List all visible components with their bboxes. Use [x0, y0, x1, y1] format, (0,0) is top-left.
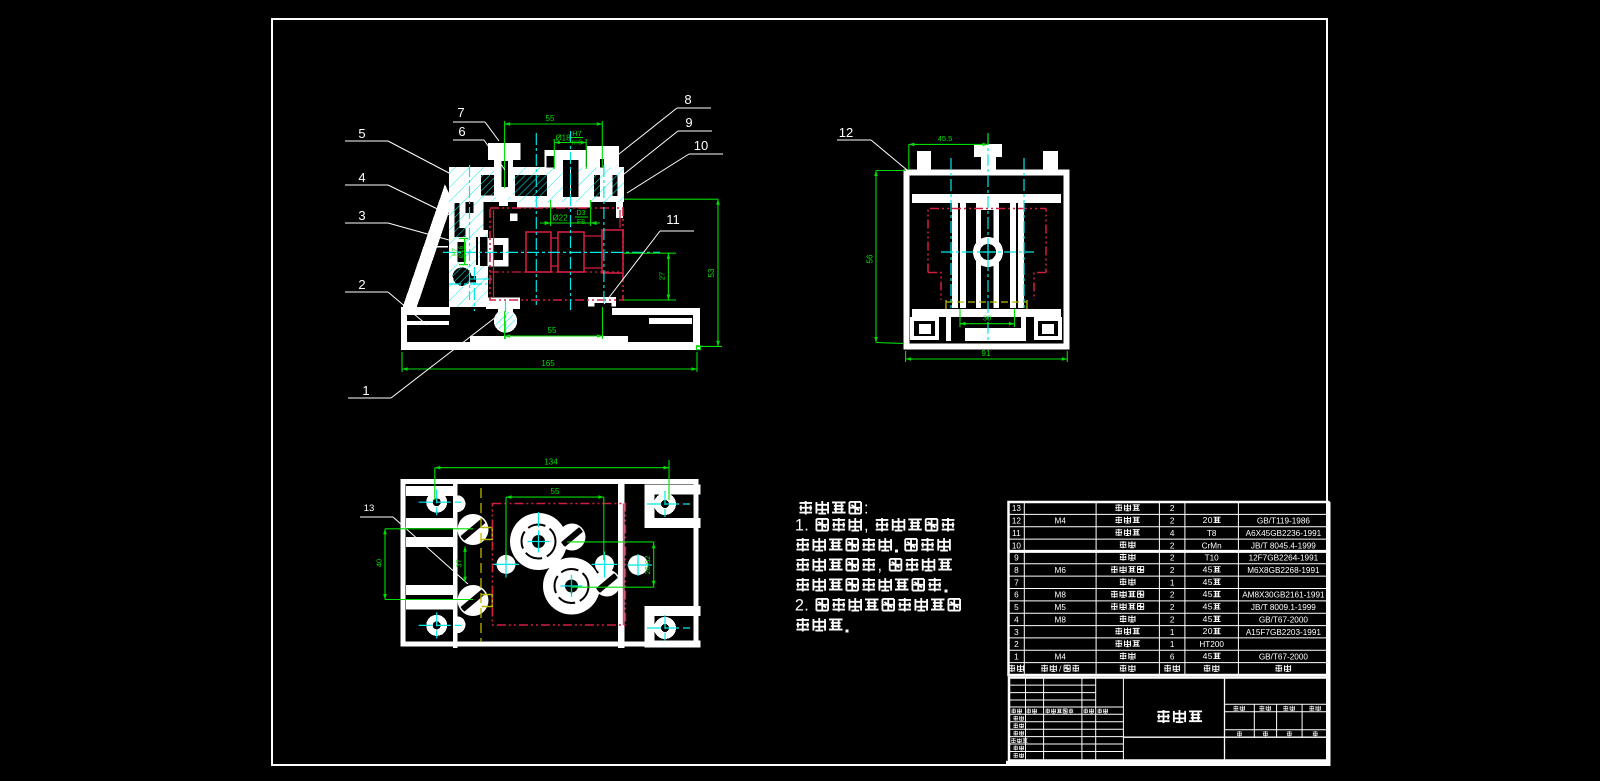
svg-text:91: 91	[982, 349, 991, 358]
svg-text:M4: M4	[1055, 517, 1067, 526]
svg-text:56: 56	[866, 254, 875, 263]
svg-text:m6: m6	[572, 138, 582, 147]
svg-text:,: ,	[864, 516, 869, 534]
svg-text:3: 3	[358, 208, 365, 223]
svg-text:12F7GB2264-1991: 12F7GB2264-1991	[1249, 554, 1319, 563]
svg-text:F8: F8	[577, 219, 585, 226]
svg-text:4: 4	[358, 170, 365, 185]
svg-text:T10: T10	[1205, 554, 1220, 563]
svg-text:26.02: 26.02	[643, 556, 652, 575]
svg-text:5: 5	[1208, 564, 1213, 574]
svg-text:12: 12	[839, 125, 853, 140]
svg-text:1: 1	[795, 516, 804, 534]
svg-text:6: 6	[1014, 591, 1019, 600]
svg-text:55: 55	[546, 114, 555, 123]
svg-text:5: 5	[1208, 577, 1213, 587]
svg-text:13: 13	[364, 503, 375, 514]
svg-text:45.5: 45.5	[938, 134, 953, 143]
svg-text:T8: T8	[1207, 529, 1217, 538]
svg-text:2: 2	[358, 277, 365, 292]
svg-text:M4: M4	[1055, 652, 1067, 661]
svg-text:2: 2	[1170, 554, 1175, 563]
svg-text:9: 9	[1014, 554, 1019, 563]
svg-text:1: 1	[1170, 628, 1175, 637]
svg-text:2: 2	[1014, 640, 1019, 649]
svg-text:12: 12	[1012, 517, 1022, 526]
svg-text:JB/T 8045.4-1999: JB/T 8045.4-1999	[1251, 541, 1316, 550]
svg-text:HT200: HT200	[1199, 640, 1224, 649]
svg-text:2: 2	[795, 596, 804, 614]
svg-text:GB/T119-1986: GB/T119-1986	[1257, 517, 1311, 526]
svg-text:CrMn: CrMn	[1202, 541, 1222, 550]
svg-text:8: 8	[1014, 566, 1019, 575]
svg-text:AM8X30GB2161-1991: AM8X30GB2161-1991	[1242, 591, 1325, 600]
svg-text:3: 3	[1014, 628, 1019, 637]
svg-text:A6X45GB2236-1991: A6X45GB2236-1991	[1246, 529, 1322, 538]
svg-text:1: 1	[1170, 578, 1175, 587]
svg-text:5: 5	[1208, 589, 1213, 599]
svg-text:2: 2	[1170, 504, 1175, 513]
svg-text:55: 55	[548, 326, 557, 335]
svg-text:Ø22: Ø22	[552, 214, 568, 223]
svg-text:M6X8GB2268-1991: M6X8GB2268-1991	[1247, 566, 1320, 575]
svg-text:D3: D3	[577, 210, 586, 217]
svg-text:M5: M5	[1055, 603, 1067, 612]
svg-text:A15F7GB2203-1991: A15F7GB2203-1991	[1246, 628, 1322, 637]
svg-text:5: 5	[1014, 603, 1019, 612]
svg-text:M8: M8	[1055, 591, 1067, 600]
svg-text:GB/T67-2000: GB/T67-2000	[1259, 615, 1309, 624]
svg-text:13: 13	[1012, 504, 1022, 513]
svg-text:10: 10	[694, 138, 708, 153]
svg-text:53: 53	[707, 268, 716, 277]
svg-text:0: 0	[1208, 626, 1213, 636]
svg-text:6: 6	[458, 124, 465, 139]
svg-text:2: 2	[1170, 615, 1175, 624]
svg-text:5: 5	[1208, 651, 1213, 661]
svg-text:0: 0	[1208, 515, 1213, 525]
svg-text:Ø18: Ø18	[555, 134, 571, 143]
svg-text:6: 6	[1170, 652, 1175, 661]
svg-text:4: 4	[1170, 529, 1175, 538]
svg-text:40: 40	[375, 559, 384, 567]
svg-text:2: 2	[1170, 603, 1175, 612]
svg-text:1: 1	[1170, 640, 1175, 649]
svg-text:5: 5	[358, 126, 365, 141]
svg-text:,: ,	[878, 556, 883, 574]
svg-text:JB/T 8009.1-1999: JB/T 8009.1-1999	[1251, 603, 1316, 612]
svg-text:.: .	[804, 516, 809, 534]
svg-text:M8: M8	[1055, 615, 1067, 624]
svg-text:4: 4	[1014, 615, 1019, 624]
svg-text:M6: M6	[1055, 566, 1067, 575]
svg-text:55: 55	[551, 487, 560, 496]
svg-text:10: 10	[1012, 541, 1022, 550]
svg-text:165: 165	[541, 359, 555, 368]
svg-text:2: 2	[1170, 566, 1175, 575]
svg-text:7: 7	[1014, 578, 1019, 587]
svg-text:2: 2	[1170, 591, 1175, 600]
svg-text:5: 5	[1208, 614, 1213, 624]
svg-text:5: 5	[1208, 601, 1213, 611]
svg-text:8: 8	[684, 92, 691, 107]
svg-text::: :	[864, 499, 869, 517]
svg-text:11: 11	[666, 212, 680, 227]
svg-text:2: 2	[1170, 541, 1175, 550]
svg-text:1: 1	[1014, 652, 1019, 661]
svg-text:Ø16: Ø16	[458, 245, 465, 258]
svg-text:27: 27	[658, 272, 667, 280]
svg-text:1: 1	[362, 383, 369, 398]
svg-text:9: 9	[685, 115, 692, 130]
svg-text:134: 134	[544, 458, 558, 467]
svg-text:GB/T67-2000: GB/T67-2000	[1259, 652, 1309, 661]
svg-text:11: 11	[1012, 529, 1021, 538]
svg-text:30: 30	[983, 314, 991, 323]
svg-text:37: 37	[455, 559, 464, 567]
svg-text:.: .	[804, 596, 809, 614]
svg-text:2: 2	[1170, 517, 1175, 526]
svg-text:7: 7	[457, 105, 464, 120]
